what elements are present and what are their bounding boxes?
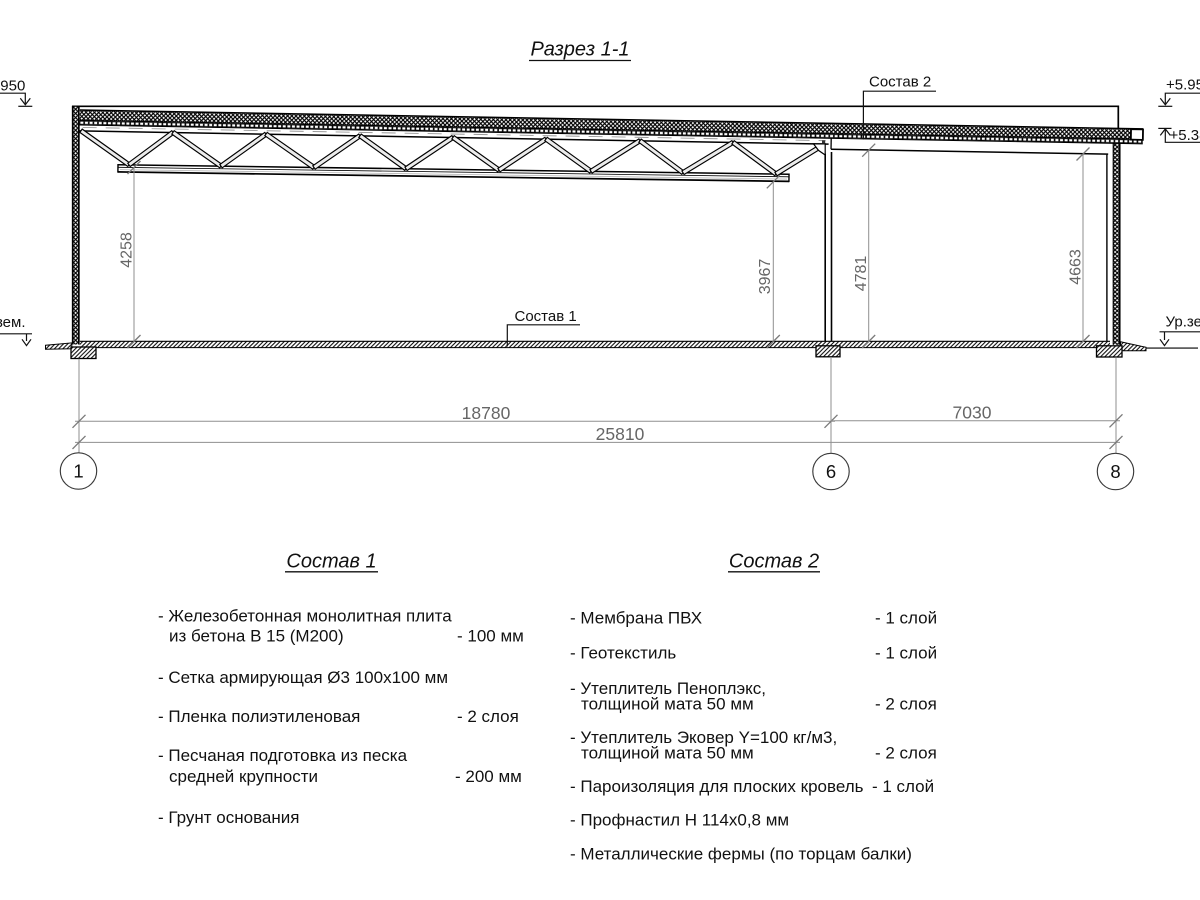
svg-text:Ур.зем.: Ур.зем.	[1166, 314, 1200, 331]
svg-text:- 100 мм: - 100 мм	[457, 627, 524, 646]
svg-text:- Грунт основания: - Грунт основания	[158, 808, 299, 827]
svg-text:- 1 слой: - 1 слой	[872, 777, 934, 796]
svg-text:- 1 слой: - 1 слой	[875, 609, 937, 628]
svg-text:4663: 4663	[1068, 249, 1085, 285]
svg-text:25810: 25810	[596, 424, 645, 444]
svg-text:Ур.зем.: Ур.зем.	[0, 314, 26, 331]
svg-text:- 2 слоя: - 2 слоя	[875, 744, 937, 763]
svg-text:+5.380: +5.380	[1170, 127, 1200, 144]
svg-text:3967: 3967	[757, 259, 774, 295]
svg-text:толщиной мата 50 мм: толщиной мата 50 мм	[581, 744, 754, 763]
svg-text:- Пароизоляция для плоских кро: - Пароизоляция для плоских кровель	[570, 777, 864, 796]
svg-text:Состав 1: Состав 1	[286, 550, 376, 572]
svg-text:18780: 18780	[462, 403, 511, 423]
svg-text:4258: 4258	[119, 232, 136, 268]
svg-text:8: 8	[1110, 461, 1120, 482]
svg-text:Разрез 1-1: Разрез 1-1	[530, 39, 629, 61]
svg-text:- Геотекстиль: - Геотекстиль	[570, 644, 676, 663]
svg-text:7030: 7030	[953, 403, 992, 423]
svg-text:средней крупности: средней крупности	[169, 767, 318, 786]
svg-text:- Профнастил Н 114х0,8 мм: - Профнастил Н 114х0,8 мм	[570, 811, 789, 830]
svg-text:Состав 2: Состав 2	[729, 550, 819, 572]
svg-text:- 2 слоя: - 2 слоя	[457, 707, 519, 726]
svg-text:Состав 1: Состав 1	[515, 308, 577, 325]
svg-text:- Сетка армирующая Ø3 100х100: - Сетка армирующая Ø3 100х100 мм	[158, 668, 448, 687]
svg-text:+5.950: +5.950	[1166, 77, 1200, 94]
svg-text:- Металлические фермы (по торц: - Металлические фермы (по торцам балки)	[570, 845, 912, 864]
svg-text:- 2 слоя: - 2 слоя	[875, 695, 937, 714]
svg-text:6: 6	[826, 461, 836, 482]
svg-text:- Песчаная подготовка из песка: - Песчаная подготовка из песка	[158, 746, 408, 765]
svg-text:толщиной мата 50 мм: толщиной мата 50 мм	[581, 695, 754, 714]
svg-text:из бетона В 15 (М200): из бетона В 15 (М200)	[169, 627, 344, 646]
svg-text:1: 1	[73, 461, 83, 482]
svg-text:- Пленка полиэтиленовая: - Пленка полиэтиленовая	[158, 707, 360, 726]
svg-text:- Железобетонная монолитная п: - Железобетонная монолитная плита	[158, 607, 452, 626]
svg-text:4781: 4781	[853, 256, 870, 292]
svg-text:+5.950: +5.950	[0, 78, 25, 95]
svg-text:- 1 слой: - 1 слой	[875, 644, 937, 663]
svg-text:- 200 мм: - 200 мм	[455, 767, 522, 786]
svg-text:- Мембрана ПВХ: - Мембрана ПВХ	[570, 609, 702, 628]
svg-text:Состав 2: Состав 2	[869, 73, 931, 90]
